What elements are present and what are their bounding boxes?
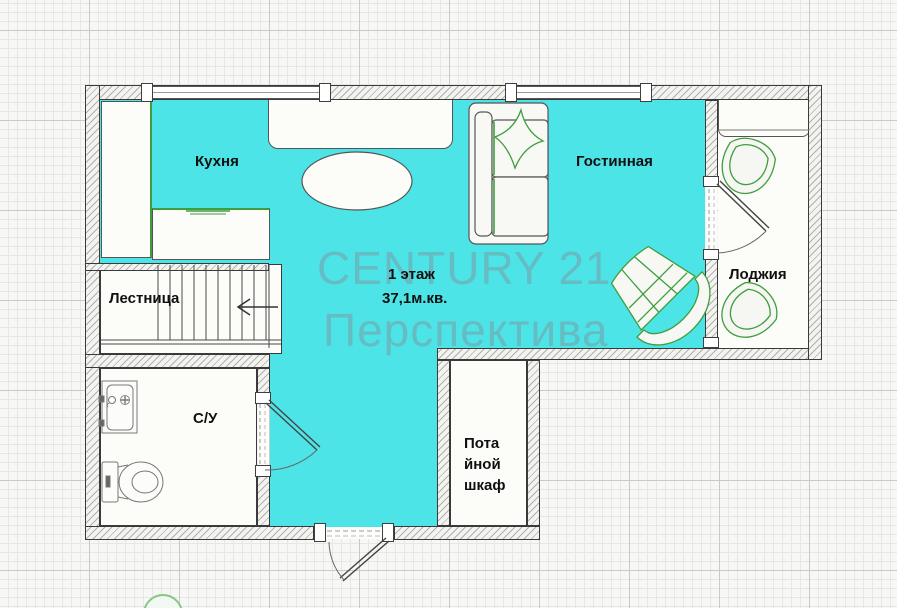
wall-segment-closet-right: [527, 360, 540, 526]
window-kitchen: [152, 86, 320, 99]
room-bathroom: [100, 368, 257, 526]
door-frame-post: [703, 249, 719, 260]
watermark-brand: CENTURY 21: [317, 241, 612, 295]
label-closet-line2: йной: [464, 454, 505, 475]
floor-area-hall: [270, 348, 450, 528]
wall-segment-closet-left: [437, 360, 450, 526]
window-frame-post: [141, 83, 153, 102]
door-frame-post: [703, 176, 719, 187]
label-total-area: 37,1м.кв.: [382, 290, 447, 307]
floor-plan-canvas: CENTURY 21 Перспектива Кухня Гостинная Л…: [0, 0, 897, 608]
room-staircase: [100, 264, 282, 354]
label-bathroom: С/У: [193, 410, 217, 427]
label-floor-number: 1 этаж: [388, 266, 435, 283]
door-frame-post: [703, 337, 719, 348]
label-closet: Пота йной шкаф: [464, 433, 505, 496]
door-frame-post: [382, 523, 394, 542]
wall-segment-loggia-divider-bottom: [705, 250, 718, 348]
wall-segment-loggia-divider-top: [705, 100, 718, 182]
entrance-door-opening: [326, 527, 382, 539]
wall-segment-bottom-right: [394, 526, 540, 540]
label-kitchen: Кухня: [195, 153, 239, 170]
window-frame-post: [319, 83, 331, 102]
wall-segment-left: [85, 85, 100, 540]
kitchen-table: [268, 97, 453, 149]
label-closet-line1: Пота: [464, 433, 505, 454]
wall-segment-below-stairs: [85, 354, 270, 368]
door-frame-post: [255, 392, 271, 404]
room-loggia: [718, 100, 808, 348]
kitchen-counter-bottom: [152, 208, 270, 260]
loggia-door-opening: [706, 187, 717, 250]
label-closet-line3: шкаф: [464, 475, 505, 496]
watermark-agency: Перспектива: [323, 303, 609, 357]
window-frame-post: [640, 83, 652, 102]
wall-segment-loggia-right: [808, 85, 822, 360]
plant-circle: [144, 595, 182, 608]
label-staircase: Лестница: [109, 290, 179, 307]
door-frame-post: [314, 523, 326, 542]
door-frame-post: [255, 465, 271, 477]
wall-segment-above-stairs: [85, 263, 269, 271]
wall-segment-bottom-left: [85, 526, 314, 540]
window-frame-post: [505, 83, 517, 102]
loggia-desk: [718, 99, 810, 137]
label-living-room: Гостинная: [576, 153, 653, 170]
label-loggia: Лоджия: [729, 266, 787, 283]
window-living-room: [517, 86, 641, 99]
bathroom-door-opening: [258, 403, 269, 467]
kitchen-counter-left: [101, 101, 152, 258]
